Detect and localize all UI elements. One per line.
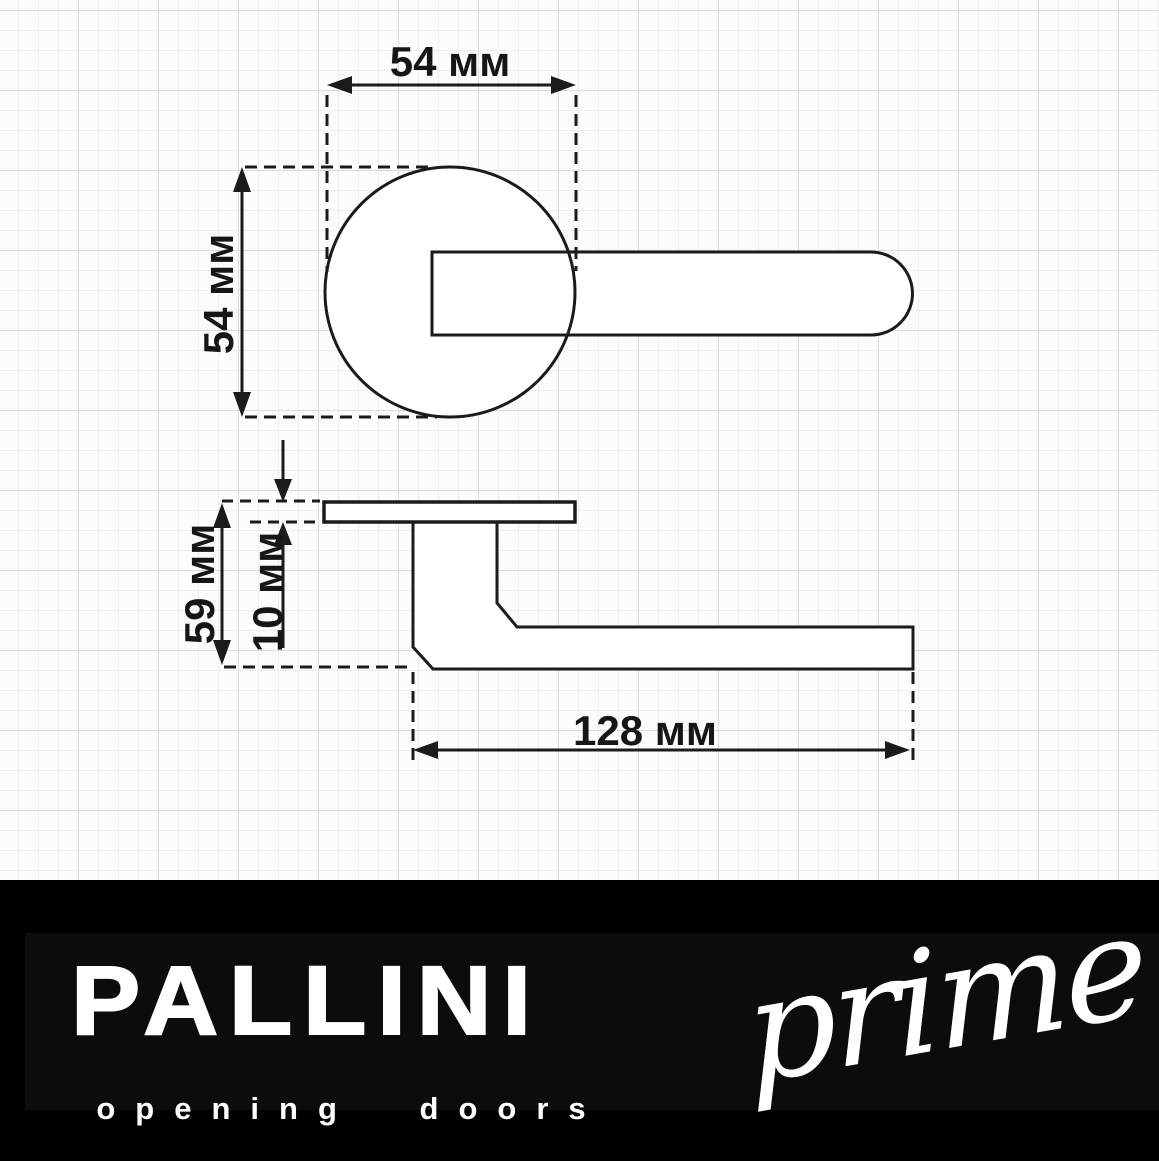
- dim-side-height: 59 мм: [176, 501, 411, 667]
- dim-label-rosette-width: 54 мм: [390, 38, 511, 85]
- brand-name: PALLINI: [71, 952, 692, 1049]
- brand-tagline: opening doors: [71, 1093, 631, 1124]
- side-view: [324, 502, 913, 669]
- technical-drawing: 54 мм 54 мм: [0, 0, 1159, 880]
- rosette-side-profile: [324, 502, 575, 522]
- arrowhead-left-icon: [327, 76, 352, 94]
- lever-side-profile: [413, 522, 913, 669]
- dim-label-handle-length: 128 мм: [573, 707, 717, 754]
- brand-footer: PALLINI opening doors prime: [0, 880, 1159, 1161]
- arrowhead-right-icon: [551, 76, 576, 94]
- lever-top-fill: [432, 252, 912, 335]
- dim-rosette-thickness: 10 мм: [244, 440, 320, 652]
- product-sheet: 54 мм 54 мм: [0, 0, 1159, 1161]
- dim-label-side-height: 59 мм: [176, 524, 223, 645]
- dim-label-rosette-thickness: 10 мм: [244, 532, 291, 653]
- arrowhead-down-icon: [274, 479, 292, 502]
- dim-label-rosette-height: 54 мм: [195, 234, 242, 355]
- arrowhead-right-icon: [885, 741, 910, 759]
- arrowhead-down-icon: [233, 392, 251, 417]
- brand-logo: PALLINI opening doors: [71, 952, 651, 1124]
- arrowhead-up-icon: [233, 167, 251, 192]
- dim-handle-length: 128 мм: [413, 672, 913, 763]
- arrowhead-left-icon: [413, 741, 438, 759]
- drawing-area: 54 мм 54 мм: [0, 0, 1159, 880]
- top-view: [325, 167, 912, 417]
